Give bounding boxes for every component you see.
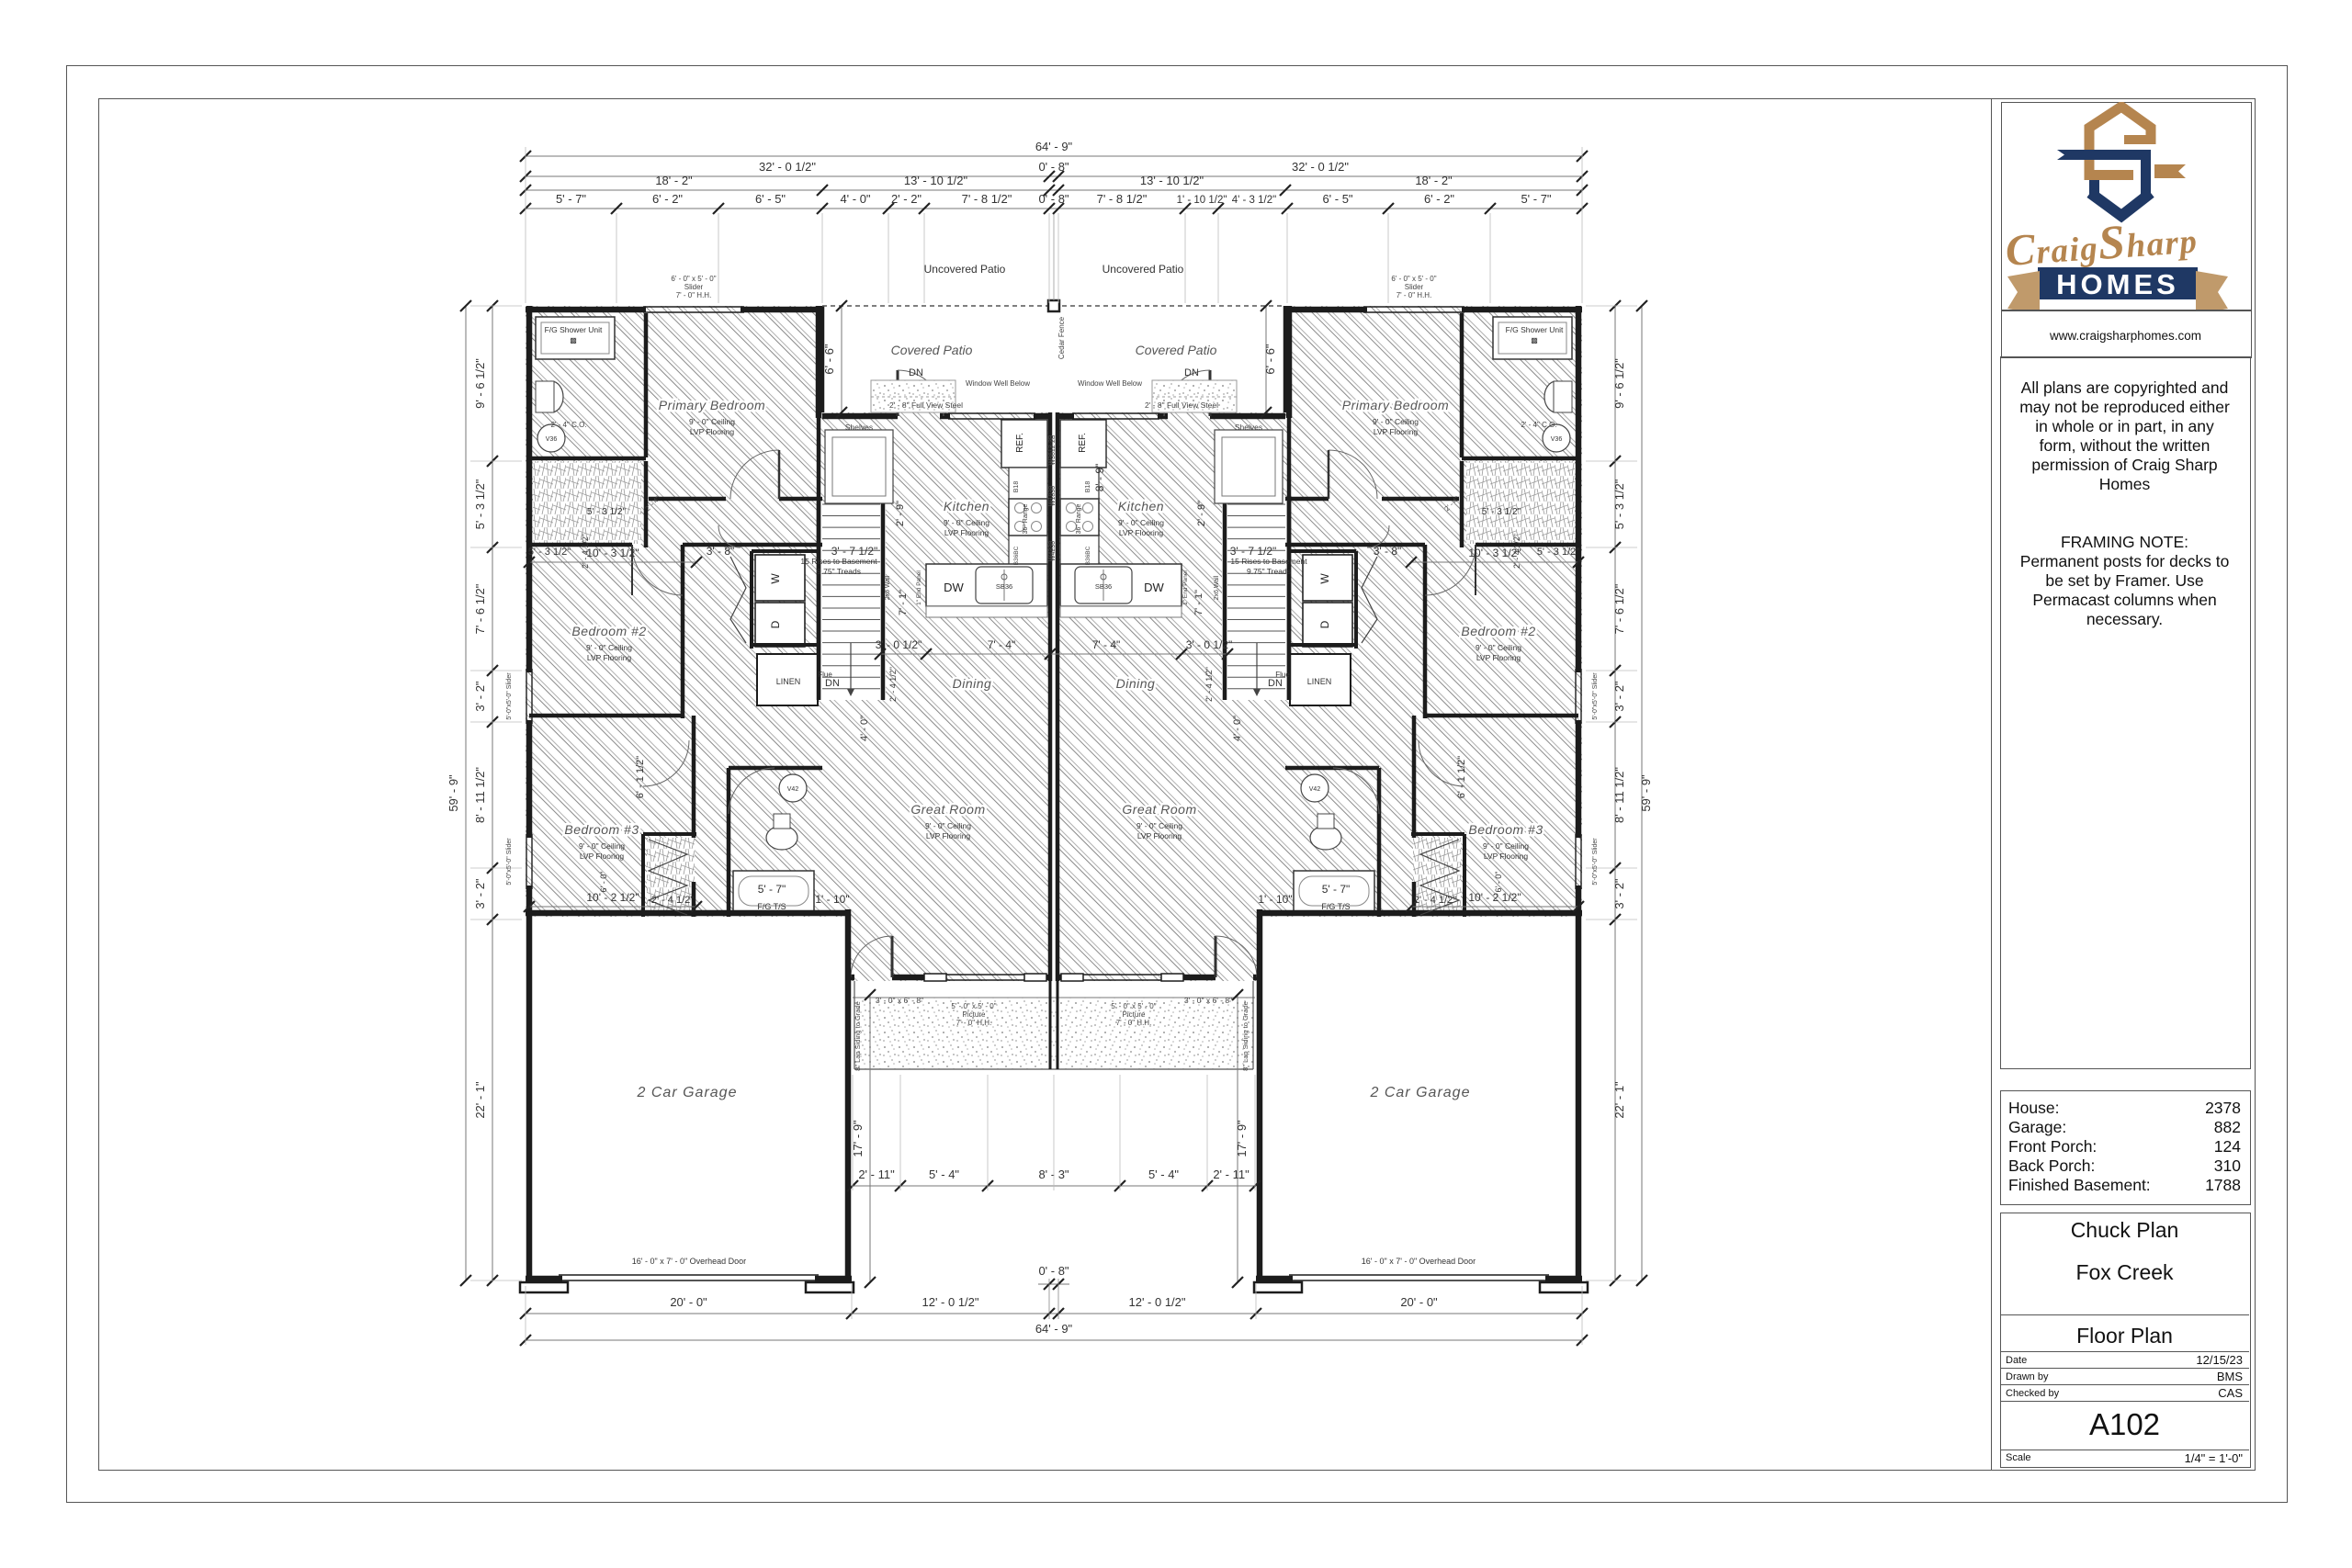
svg-text:Slider: Slider: [684, 283, 704, 291]
svg-text:6' - 1 1/2": 6' - 1 1/2": [635, 756, 646, 798]
svg-text:LVP Flooring: LVP Flooring: [580, 852, 625, 861]
svg-text:5' - 3 1/2": 5' - 3 1/2": [1482, 507, 1521, 517]
svg-text:D: D: [769, 620, 782, 628]
svg-text:36" Range: 36" Range: [1023, 503, 1029, 534]
svg-text:59' - 9": 59' - 9": [1639, 774, 1653, 812]
svg-text:3' - 0 1/2": 3' - 0 1/2": [876, 638, 922, 651]
svg-text:1" End Panel: 1" End Panel: [1182, 570, 1189, 605]
svg-text:4' - 0": 4' - 0": [840, 192, 870, 206]
svg-text:2' - 11": 2' - 11": [858, 1168, 895, 1181]
svg-text:7' - 8 1/2": 7' - 8 1/2": [962, 192, 1012, 206]
svg-text:3' - 8": 3' - 8": [707, 545, 735, 558]
svg-text:2' - 4 1/2": 2' - 4 1/2": [581, 534, 590, 569]
svg-text:5' - 0" x 5' - 0": 5' - 0" x 5' - 0": [1111, 1002, 1156, 1010]
svg-text:W3612-2B: W3612-2B: [1050, 434, 1057, 465]
svg-text:5' - 7": 5' - 7": [1521, 192, 1551, 206]
svg-text:9' - 0" Ceiling: 9' - 0" Ceiling: [1373, 417, 1419, 426]
svg-text:16' - 0" x 7' - 0" Overhead Do: 16' - 0" x 7' - 0" Overhead Door: [632, 1257, 746, 1266]
svg-text:5' - 3 1/2": 5' - 3 1/2": [1537, 547, 1579, 558]
svg-text:5' - 0" x 5' - 0": 5' - 0" x 5' - 0": [951, 1002, 996, 1010]
svg-text:5'-0"x5'-0" Slider: 5'-0"x5'-0" Slider: [1592, 672, 1599, 720]
svg-text:Window Well Below: Window Well Below: [1078, 379, 1142, 388]
svg-text:4' - 0": 4' - 0": [1232, 716, 1243, 741]
svg-text:2' - 4" C.O.: 2' - 4" C.O.: [550, 421, 586, 429]
svg-text:22' - 1": 22' - 1": [473, 1081, 487, 1119]
svg-text:SB36: SB36: [1095, 582, 1112, 591]
svg-text:2x6 Wall: 2x6 Wall: [1214, 575, 1220, 600]
svg-text:16' - 0" x 7' - 0" Overhead Do: 16' - 0" x 7' - 0" Overhead Door: [1362, 1257, 1476, 1266]
svg-text:9' - 0" Ceiling: 9' - 0" Ceiling: [1476, 643, 1521, 652]
svg-text:3' - 0 1/2": 3' - 0 1/2": [1186, 638, 1233, 651]
svg-text:0' - 8": 0' - 8": [1038, 1264, 1069, 1278]
svg-text:7' - 4": 7' - 4": [1092, 638, 1121, 651]
svg-text:6' - 5": 6' - 5": [1322, 192, 1352, 206]
svg-text:9' - 0" Ceiling: 9' - 0" Ceiling: [925, 821, 971, 830]
svg-text:6' - 6": 6' - 6": [1263, 344, 1277, 374]
svg-text:17' - 9": 17' - 9": [1235, 1120, 1249, 1157]
svg-text:7' - 0" H.H.: 7' - 0" H.H.: [676, 291, 712, 299]
svg-text:18' - 2": 18' - 2": [1415, 174, 1453, 187]
svg-text:32' - 0 1/2": 32' - 0 1/2": [759, 160, 816, 174]
svg-text:3' - 0" x 6' - 8": 3' - 0" x 6' - 8": [876, 996, 923, 1005]
svg-text:Covered Patio: Covered Patio: [891, 343, 973, 357]
svg-text:2' - 8" Full View Steel: 2' - 8" Full View Steel: [889, 400, 963, 410]
svg-text:18' - 2": 18' - 2": [655, 174, 693, 187]
svg-text:W: W: [769, 573, 782, 584]
svg-text:2' - 4 1/2": 2' - 4 1/2": [651, 895, 694, 906]
svg-text:9' - 6 1/2": 9' - 6 1/2": [473, 358, 487, 409]
svg-text:F/G Shower Unit: F/G Shower Unit: [1506, 325, 1564, 334]
svg-text:DN: DN: [909, 367, 923, 378]
svg-text:6' - 0" x 5' - 0": 6' - 0" x 5' - 0": [1391, 275, 1436, 283]
svg-text:5' - 4": 5' - 4": [929, 1168, 959, 1181]
svg-text:LVP Flooring: LVP Flooring: [1374, 427, 1419, 436]
svg-text:W4230: W4230: [1050, 541, 1057, 561]
svg-text:9' - 0" Ceiling: 9' - 0" Ceiling: [689, 417, 735, 426]
svg-text:LVP Flooring: LVP Flooring: [1484, 852, 1529, 861]
svg-text:5' - 7": 5' - 7": [1322, 883, 1351, 896]
svg-text:Bedroom #3: Bedroom #3: [564, 822, 639, 837]
svg-text:V36: V36: [546, 436, 558, 443]
svg-text:7' - 0" H.H.: 7' - 0" H.H.: [1116, 1019, 1152, 1027]
svg-text:6' - 1 1/2": 6' - 1 1/2": [1456, 756, 1467, 798]
svg-text:6' - 0" x 5' - 0": 6' - 0" x 5' - 0": [671, 275, 716, 283]
svg-text:8" Lap Siding to Grade: 8" Lap Siding to Grade: [1241, 1001, 1249, 1071]
svg-text:20' - 0": 20' - 0": [670, 1295, 707, 1309]
svg-text:CraigSharp: CraigSharp: [2004, 210, 2199, 276]
svg-text:6' - 2": 6' - 2": [1424, 192, 1454, 206]
svg-text:9.75" Treads: 9.75" Treads: [817, 567, 861, 576]
svg-text:13' - 10 1/2": 13' - 10 1/2": [1140, 174, 1204, 187]
svg-text:DN: DN: [825, 678, 840, 689]
svg-text:Picture: Picture: [963, 1010, 986, 1019]
svg-text:0' - 8": 0' - 8": [1038, 192, 1069, 206]
svg-text:8' - 11 1/2": 8' - 11 1/2": [473, 767, 487, 823]
svg-text:Cedar Fence: Cedar Fence: [1057, 316, 1066, 359]
svg-text:Slider: Slider: [1405, 283, 1424, 291]
svg-text:Bedroom #2: Bedroom #2: [571, 624, 646, 638]
svg-text:V42: V42: [787, 786, 799, 793]
svg-text:3' - 7 1/2": 3' - 7 1/2": [831, 545, 878, 558]
svg-text:W: W: [1318, 573, 1331, 584]
svg-text:Flue: Flue: [1275, 671, 1290, 679]
svg-text:DW: DW: [1144, 581, 1164, 594]
svg-text:Flue: Flue: [818, 671, 832, 679]
svg-text:Primary Bedroom: Primary Bedroom: [1342, 398, 1449, 412]
svg-text:D: D: [1318, 620, 1331, 628]
svg-text:2' - 4 1/2": 2' - 4 1/2": [1414, 895, 1456, 906]
svg-text:2 Car Garage: 2 Car Garage: [1370, 1085, 1471, 1100]
svg-text:3' - 2": 3' - 2": [1612, 878, 1626, 908]
svg-text:2' - 4 1/2": 2' - 4 1/2": [1204, 667, 1214, 702]
svg-text:13' - 10 1/2": 13' - 10 1/2": [904, 174, 968, 187]
svg-text:7' - 8 1/2": 7' - 8 1/2": [1097, 192, 1148, 206]
svg-text:5' - 3 1/2": 5' - 3 1/2": [473, 479, 487, 529]
svg-text:9' - 0" Ceiling: 9' - 0" Ceiling: [1136, 821, 1182, 830]
svg-text:1" End Panel: 1" End Panel: [916, 570, 922, 605]
svg-text:0' - 8": 0' - 8": [1038, 160, 1069, 174]
svg-text:3' - 8": 3' - 8": [1374, 545, 1402, 558]
svg-text:▩: ▩: [570, 336, 577, 344]
svg-text:5'-0"x5'-0" Slider: 5'-0"x5'-0" Slider: [506, 838, 513, 886]
svg-text:Window Well Below: Window Well Below: [966, 379, 1030, 388]
svg-text:Covered Patio: Covered Patio: [1136, 343, 1217, 357]
svg-text:7' - 1": 7' - 1": [898, 590, 909, 615]
svg-text:2' - 8" Full View Steel: 2' - 8" Full View Steel: [1145, 400, 1218, 410]
svg-text:Kitchen: Kitchen: [1118, 499, 1164, 513]
svg-text:2' - 4 1/2": 2' - 4 1/2": [888, 667, 898, 702]
svg-text:3' - 2": 3' - 2": [1612, 681, 1626, 711]
svg-text:6' - 2": 6' - 2": [652, 192, 683, 206]
svg-text:HOMES: HOMES: [2056, 268, 2179, 300]
svg-text:REF.: REF.: [1015, 433, 1025, 453]
svg-text:7' - 1": 7' - 1": [1193, 590, 1204, 615]
svg-text:17' - 9": 17' - 9": [851, 1120, 865, 1157]
svg-text:5' - 3 1/2": 5' - 3 1/2": [587, 507, 627, 517]
svg-text:3' - 7 1/2": 3' - 7 1/2": [1230, 545, 1277, 558]
svg-text:15 Rises to Basement: 15 Rises to Basement: [800, 557, 877, 566]
svg-text:64' - 9": 64' - 9": [1035, 140, 1073, 153]
svg-text:V36: V36: [1551, 436, 1563, 443]
svg-text:Primary Bedroom: Primary Bedroom: [659, 398, 765, 412]
svg-text:3' - 0" x 6' - 8": 3' - 0" x 6' - 8": [1184, 996, 1232, 1005]
svg-text:7' - 6 1/2": 7' - 6 1/2": [1612, 583, 1626, 634]
svg-text:8' - 9": 8' - 9": [1093, 464, 1106, 492]
svg-text:F/G T/S: F/G T/S: [1321, 902, 1350, 911]
svg-text:9' - 0" Ceiling: 9' - 0" Ceiling: [586, 643, 632, 652]
svg-text:Dining: Dining: [1116, 676, 1156, 691]
svg-text:LVP Flooring: LVP Flooring: [944, 528, 989, 537]
svg-text:LVP Flooring: LVP Flooring: [587, 653, 632, 662]
svg-text:8' - 11 1/2": 8' - 11 1/2": [1612, 767, 1626, 823]
svg-text:1' - 10 1/2": 1' - 10 1/2": [1177, 195, 1227, 206]
svg-text:3' - 2": 3' - 2": [473, 878, 487, 908]
svg-text:REF.: REF.: [1078, 433, 1088, 453]
svg-text:2 Car Garage: 2 Car Garage: [637, 1085, 738, 1100]
svg-text:2x6 Wall: 2x6 Wall: [885, 575, 891, 600]
svg-text:5'-0"x5'-0" Slider: 5'-0"x5'-0" Slider: [1592, 838, 1599, 886]
svg-text:7' - 0" H.H.: 7' - 0" H.H.: [1396, 291, 1432, 299]
svg-text:59' - 9": 59' - 9": [447, 774, 460, 812]
svg-text:DW: DW: [944, 581, 964, 594]
svg-text:6' - 0": 6' - 0": [599, 872, 608, 893]
svg-text:12' - 0 1/2": 12' - 0 1/2": [922, 1295, 978, 1309]
svg-text:2' - 9": 2' - 9": [1196, 501, 1207, 526]
svg-text:3' - 2": 3' - 2": [473, 681, 487, 711]
svg-text:B36BC: B36BC: [1013, 546, 1020, 565]
svg-text:Uncovered Patio: Uncovered Patio: [1102, 263, 1184, 276]
svg-text:DN: DN: [1184, 367, 1199, 378]
svg-text:Great Room: Great Room: [1122, 802, 1196, 817]
svg-text:LVP Flooring: LVP Flooring: [926, 831, 971, 840]
svg-text:2' - 2": 2' - 2": [891, 192, 922, 206]
svg-text:10' - 3 1/2": 10' - 3 1/2": [586, 547, 639, 559]
svg-text:9' - 0" Ceiling: 9' - 0" Ceiling: [579, 841, 625, 851]
svg-text:Great Room: Great Room: [910, 802, 985, 817]
svg-text:64' - 9": 64' - 9": [1035, 1322, 1073, 1336]
svg-text:9' - 0" Ceiling: 9' - 0" Ceiling: [944, 518, 989, 527]
svg-text:Bedroom #3: Bedroom #3: [1468, 822, 1543, 837]
svg-text:SB36: SB36: [996, 582, 1012, 591]
svg-text:F/G T/S: F/G T/S: [757, 902, 786, 911]
svg-text:LVP Flooring: LVP Flooring: [1137, 831, 1182, 840]
svg-text:B18: B18: [1013, 481, 1020, 493]
svg-text:Bedroom #2: Bedroom #2: [1461, 624, 1535, 638]
svg-text:F/G Shower Unit: F/G Shower Unit: [545, 325, 603, 334]
svg-text:2' - 11": 2' - 11": [1213, 1168, 1249, 1181]
svg-text:32' - 0 1/2": 32' - 0 1/2": [1292, 160, 1349, 174]
svg-text:6' - 5": 6' - 5": [755, 192, 786, 206]
svg-text:9' - 0" Ceiling: 9' - 0" Ceiling: [1118, 518, 1164, 527]
svg-text:9' - 6 1/2": 9' - 6 1/2": [1612, 358, 1626, 409]
svg-text:6' - 6": 6' - 6": [822, 344, 836, 374]
svg-text:DN: DN: [1268, 678, 1283, 689]
svg-text:9' - 0" Ceiling: 9' - 0" Ceiling: [1483, 841, 1529, 851]
svg-text:Uncovered Patio: Uncovered Patio: [924, 263, 1006, 276]
svg-text:1' - 10": 1' - 10": [1258, 893, 1292, 906]
svg-text:LINEN: LINEN: [776, 677, 801, 686]
svg-text:10' - 2 1/2": 10' - 2 1/2": [586, 891, 639, 904]
svg-text:4' - 0": 4' - 0": [859, 716, 870, 741]
svg-text:5' - 3 1/2": 5' - 3 1/2": [528, 547, 571, 558]
svg-text:4' - 3 1/2": 4' - 3 1/2": [1232, 195, 1276, 206]
svg-text:V42: V42: [1309, 786, 1321, 793]
svg-text:LVP Flooring: LVP Flooring: [690, 427, 735, 436]
svg-text:9.75" Treads: 9.75" Treads: [1247, 567, 1291, 576]
svg-text:B36BC: B36BC: [1085, 546, 1091, 565]
svg-text:Dining: Dining: [953, 676, 992, 691]
svg-text:7' - 0" H.H.: 7' - 0" H.H.: [956, 1019, 992, 1027]
svg-text:5' - 7": 5' - 7": [758, 883, 786, 896]
svg-text:5' - 4": 5' - 4": [1148, 1168, 1179, 1181]
svg-text:Shelves: Shelves: [1235, 423, 1262, 432]
svg-text:15 Rises to Basement: 15 Rises to Basement: [1230, 557, 1307, 566]
svg-text:B18: B18: [1085, 481, 1091, 493]
svg-text:Kitchen: Kitchen: [944, 499, 989, 513]
svg-text:7' - 4": 7' - 4": [988, 638, 1016, 651]
svg-text:LVP Flooring: LVP Flooring: [1119, 528, 1164, 537]
svg-text:12' - 0 1/2": 12' - 0 1/2": [1128, 1295, 1185, 1309]
svg-text:6' - 0": 6' - 0": [1494, 872, 1503, 893]
svg-text:1' - 10": 1' - 10": [815, 893, 849, 906]
svg-text:7' - 6 1/2": 7' - 6 1/2": [473, 583, 487, 634]
svg-text:5' - 7": 5' - 7": [556, 192, 586, 206]
svg-text:Picture: Picture: [1123, 1010, 1146, 1019]
svg-text:2' - 4 1/2": 2' - 4 1/2": [1512, 534, 1521, 569]
svg-text:5' - 3 1/2": 5' - 3 1/2": [1612, 479, 1626, 529]
svg-text:8" Lap Siding to Grade: 8" Lap Siding to Grade: [854, 1001, 862, 1071]
svg-text:▩: ▩: [1531, 336, 1538, 344]
svg-text:36" Range: 36" Range: [1076, 503, 1082, 534]
svg-text:Shelves: Shelves: [845, 423, 873, 432]
svg-text:2' - 4" C.O.: 2' - 4" C.O.: [1521, 421, 1556, 429]
svg-text:22' - 1": 22' - 1": [1612, 1081, 1626, 1119]
svg-text:W1830: W1830: [1050, 486, 1057, 506]
svg-text:20' - 0": 20' - 0": [1400, 1295, 1438, 1309]
svg-text:LVP Flooring: LVP Flooring: [1476, 653, 1521, 662]
svg-text:LINEN: LINEN: [1307, 677, 1332, 686]
svg-text:5'-0"x5'-0" Slider: 5'-0"x5'-0" Slider: [506, 672, 513, 720]
svg-text:2' - 9": 2' - 9": [895, 501, 906, 526]
